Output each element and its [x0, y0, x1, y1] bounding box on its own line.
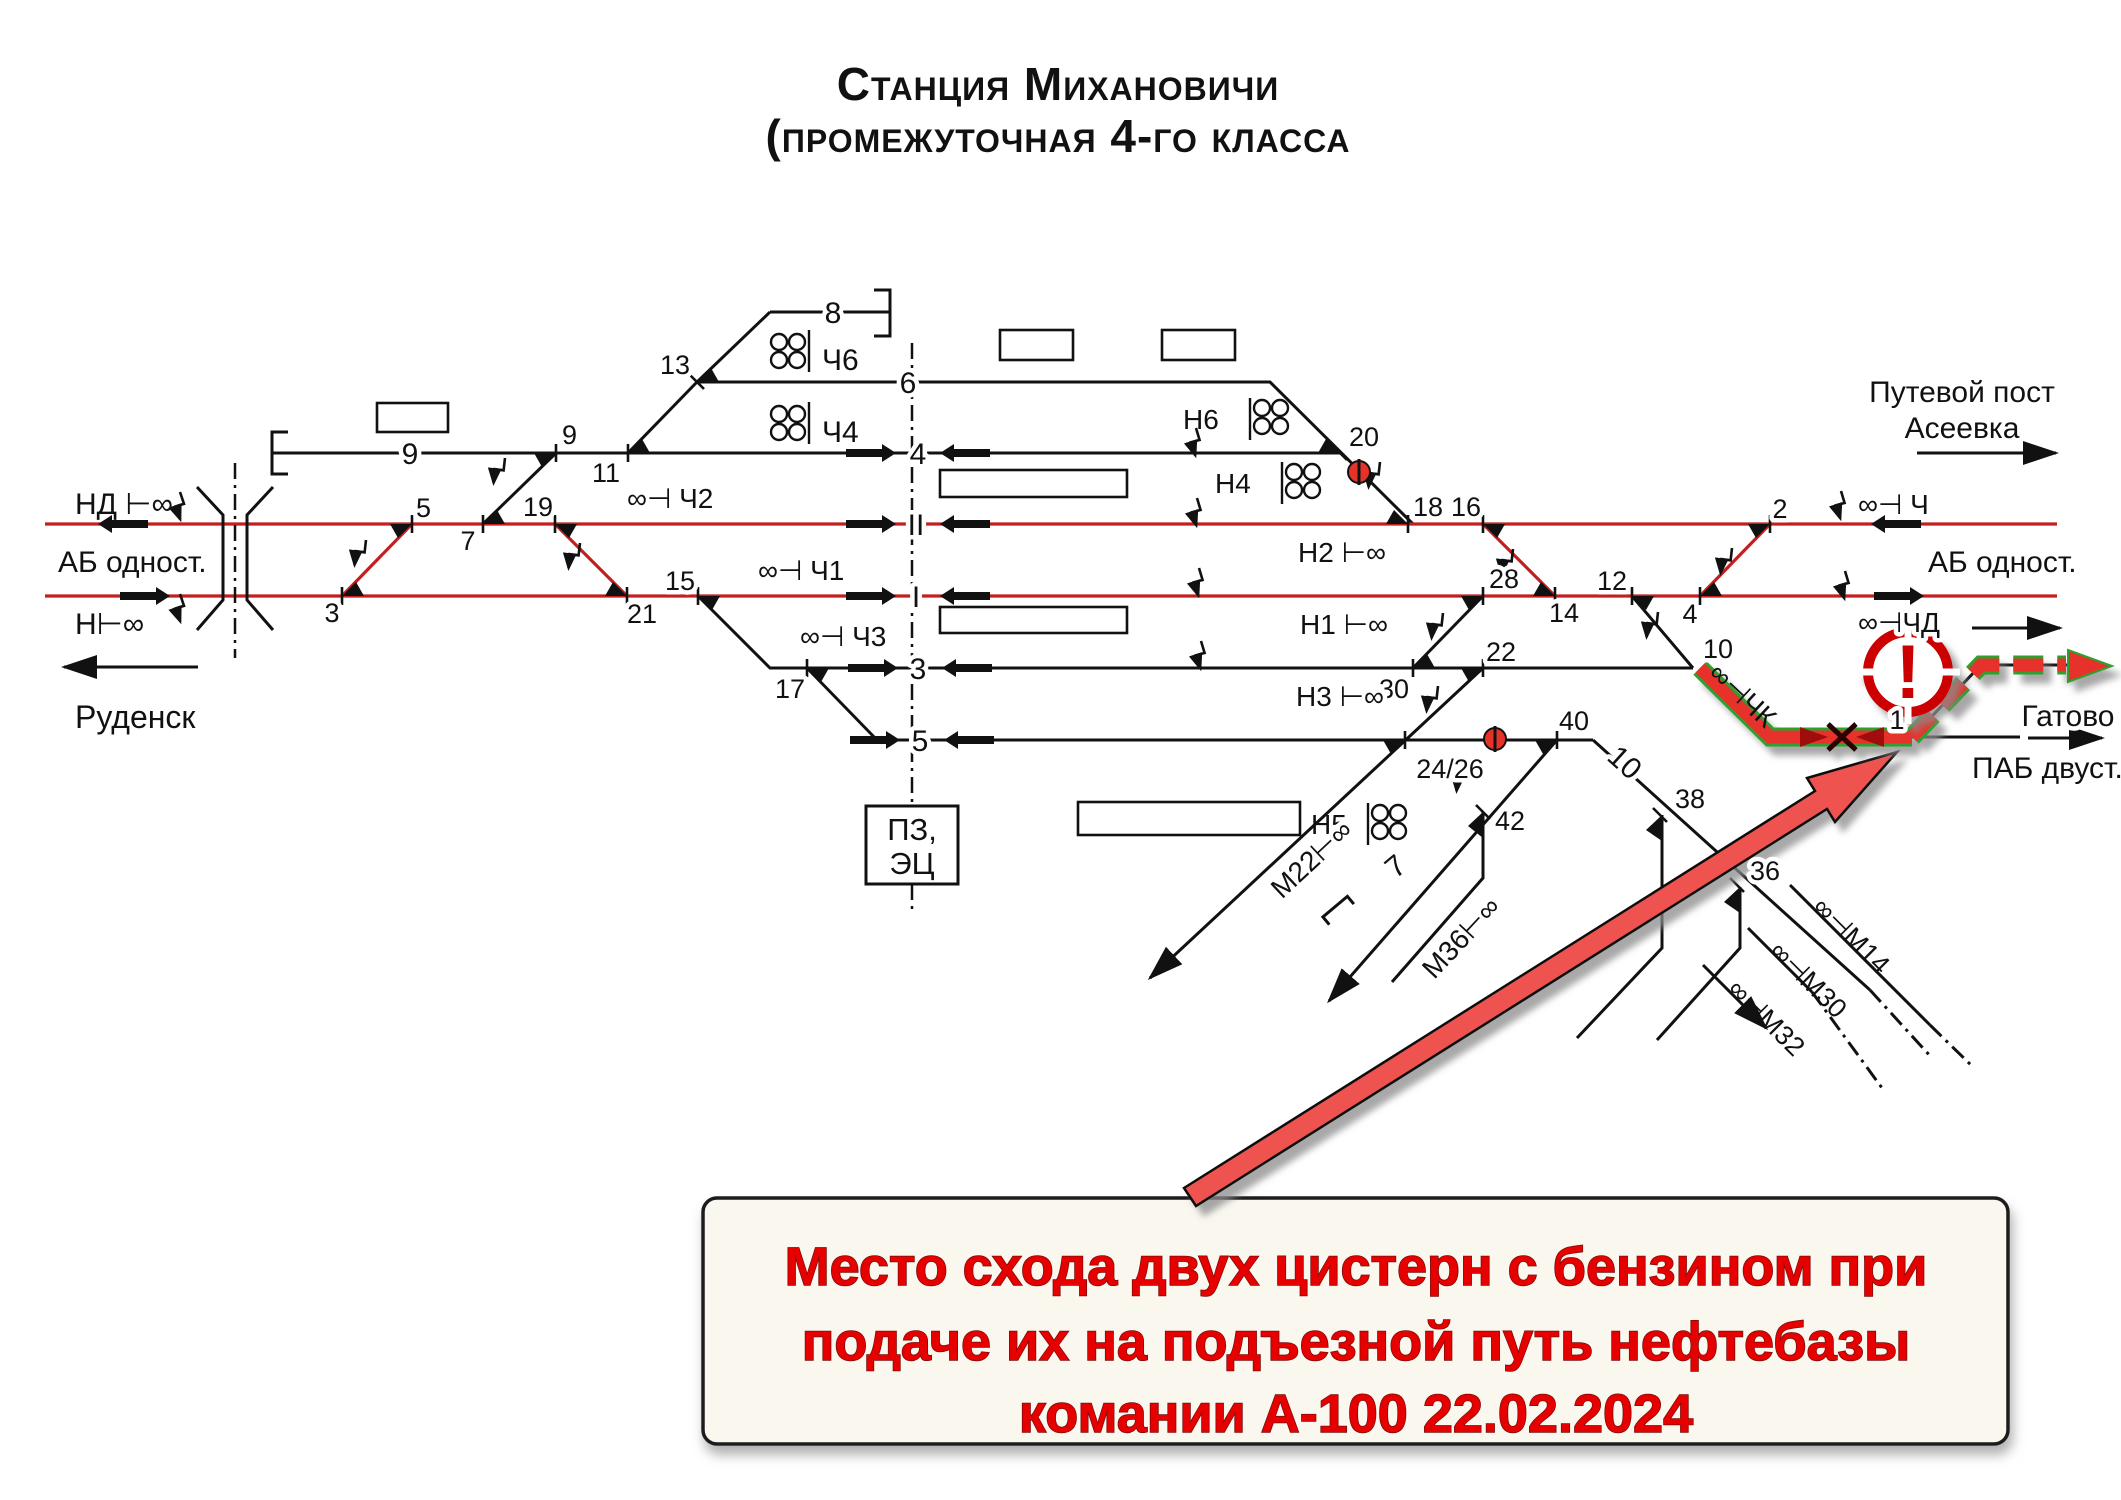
track-II-label: II — [908, 509, 925, 542]
switch-36-label: 36 — [1750, 856, 1780, 886]
signal-n6-icon — [1250, 398, 1288, 440]
switch-24-26-label: 24/26 — [1416, 754, 1484, 784]
signal-ch6-icon — [771, 330, 809, 372]
switch-9-label: 9 — [562, 420, 577, 450]
switch-15-label: 15 — [665, 566, 695, 596]
page-title-line2: (промежуточная 4-го класса — [766, 110, 1351, 162]
annotation-line1: Место схода двух цистерн с бензином при — [785, 1237, 1928, 1297]
switch-4-label: 4 — [1682, 599, 1697, 629]
switch-42-label: 42 — [1495, 806, 1525, 836]
pab-label: ПАБ двуст. — [1972, 752, 2121, 785]
right-ab-label: АБ одност. — [1928, 546, 2077, 579]
signal-n4-label: Н4 — [1215, 468, 1251, 499]
signal-n1-label: Н1 ⊢∞ — [1300, 609, 1388, 640]
switch-1-label: 1 — [1889, 705, 1904, 735]
signal-ch4-icon — [771, 402, 809, 444]
switch-18-label: 18 — [1413, 492, 1443, 522]
signal-ch6-label: Ч6 — [822, 344, 859, 377]
track-I-label: I — [912, 581, 920, 614]
switch-7-label: 7 — [460, 526, 475, 556]
signal-ch2-label: ∞⊣ Ч2 — [627, 483, 713, 514]
signal-nd-label: НД ⊢∞ — [75, 488, 173, 521]
switch-21-label: 21 — [627, 599, 657, 629]
switch-19-label: 19 — [523, 492, 553, 522]
switch-11-label: 11 — [592, 458, 620, 488]
track-4-label: 4 — [910, 438, 927, 471]
post-aseevka-line1: Путевой пост — [1869, 376, 2055, 409]
left-ab-label: АБ одност. — [58, 546, 207, 579]
switch-16-label: 16 — [1451, 492, 1481, 522]
signal-n6-label: Н6 — [1183, 404, 1219, 435]
switch-13-label: 13 — [660, 350, 690, 380]
derailer-mark-24-26 — [1484, 726, 1506, 752]
station-boundary-symbol — [197, 463, 273, 658]
control-post-line1: ПЗ, — [887, 812, 937, 847]
track-3-label: 3 — [910, 653, 927, 686]
dwarf-signal-glyphs — [771, 330, 1406, 845]
control-post-box: ПЗ, ЭЦ — [866, 806, 958, 884]
warning-exclamation-mark: ! — [1895, 630, 1920, 715]
station-scheme-mikhanovichi: ПЗ, ЭЦ — [0, 0, 2121, 1500]
track-9-label: 9 — [402, 438, 419, 471]
track-6-label: 6 — [900, 367, 917, 400]
labels-layer: Станция Михановичи (промежуточная 4-го к… — [58, 58, 2121, 1444]
signal-ch3-label: ∞⊣ Ч3 — [800, 621, 886, 652]
track-5-label: 5 — [912, 725, 929, 758]
signal-n4-icon — [1282, 462, 1320, 504]
signal-ch4-label: Ч4 — [822, 416, 859, 449]
switch-22-label: 22 — [1486, 637, 1516, 667]
signal-m14-label: ∞⊣М14 — [1807, 891, 1896, 980]
signal-n2-label: Н2 ⊢∞ — [1298, 537, 1386, 568]
signal-chd-label: ∞⊣ЧД — [1858, 607, 1940, 638]
switch-17-label: 17 — [775, 674, 805, 704]
signal-n5-icon — [1368, 803, 1406, 845]
switch-3-label: 3 — [324, 598, 339, 628]
annotation-line3: комании А-100 22.02.2024 — [1019, 1384, 1693, 1444]
signal-n-label: Н⊢∞ — [75, 608, 144, 641]
signal-ch1-label: ∞⊣ Ч1 — [758, 555, 844, 586]
switch-38-label: 38 — [1675, 784, 1705, 814]
track-8-label: 8 — [825, 297, 842, 330]
signal-n3-label: Н3 ⊢∞ — [1296, 681, 1384, 712]
annotation-line2: подаче их на подъезной путь нефтебазы — [802, 1312, 1911, 1372]
destination-rudensk: Руденск — [75, 699, 196, 735]
signal-ch-label: ∞⊣ Ч — [1858, 489, 1929, 520]
switch-2-label: 2 — [1772, 494, 1787, 524]
track-7-label: 7 — [1379, 849, 1413, 885]
switch-12-label: 12 — [1597, 566, 1627, 596]
page-title-line1: Станция Михановичи — [837, 58, 1280, 110]
destination-gatovo: Гатово — [2022, 700, 2115, 733]
control-post-line2: ЭЦ — [889, 846, 934, 881]
switch-40-label: 40 — [1559, 706, 1589, 736]
post-aseevka-line2: Асеевка — [1905, 412, 2020, 445]
branch-10-label: 10 — [1601, 740, 1648, 787]
switch-5-label: 5 — [416, 493, 431, 523]
switch-28-label: 28 — [1489, 564, 1519, 594]
switch-14-label: 14 — [1549, 598, 1579, 628]
derailer-mark-20 — [1348, 459, 1370, 485]
switch-20-label: 20 — [1349, 422, 1379, 452]
